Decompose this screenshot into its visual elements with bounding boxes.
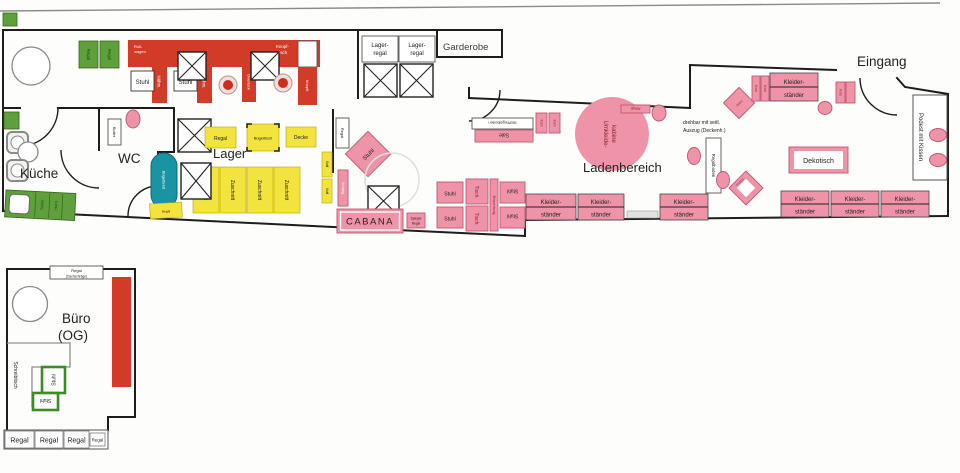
clothes-rack-row-left: Kleider- ständer Kleider- ständer Kleide…	[526, 194, 708, 220]
crossed-table	[251, 52, 279, 80]
storage-shelf-box: Lager- regal	[362, 36, 398, 62]
clothes-rack-row-right: Kleider- ständer Kleider- ständer Kleide…	[781, 191, 929, 217]
stool-oval	[652, 105, 666, 121]
table-label: Tisch	[473, 213, 479, 225]
kitchen-counter: Spüle Herd	[5, 190, 76, 221]
stool-oval	[717, 172, 730, 189]
desk-label: Schreibtisch	[12, 361, 18, 388]
ironing-board-label: Bügelbrett	[162, 171, 167, 190]
clothes-rack: Kleider- ständer	[881, 191, 929, 217]
crossed-table	[181, 163, 211, 199]
cushion	[930, 129, 947, 142]
ironing-table-label: Bügeltisch	[254, 136, 272, 141]
crossed-table	[178, 52, 206, 80]
sewing-machine-label: Nähm.	[157, 76, 162, 89]
attic-shelf-note: (Dachschräge)	[66, 275, 87, 279]
rack-label: ständer	[795, 210, 815, 216]
cutting-label: Zuschnitt	[256, 180, 262, 201]
button-table-label: Knopf-	[276, 44, 289, 49]
curtain-label: Vorhang	[341, 182, 345, 194]
chair-label: Stuhl	[444, 192, 455, 198]
wardrobe-label: Garderobe	[443, 42, 488, 53]
office-floor: Regal (Dachschräge) Büro (OG) Schreibtis…	[4, 266, 135, 449]
cart-label: wagen	[134, 49, 146, 54]
clothes-rack: Kleider- ständer	[831, 191, 879, 217]
door-arc-entrance	[860, 78, 897, 115]
cushion-podium: Podest mit Kissen	[913, 95, 947, 180]
basket-label: Korb	[839, 89, 843, 96]
chair-box: Stuhl	[437, 207, 463, 228]
podium-label: Podest mit Kissen	[917, 113, 923, 161]
blanket-label: Decke	[294, 135, 308, 141]
deco-diamond: Deko	[723, 87, 754, 118]
ironing-board: Bügelbrett	[151, 153, 177, 208]
small-shelf: Regal	[150, 202, 183, 219]
fitting-room-label: Umkleide-	[602, 120, 608, 147]
storage-shelf-box: Lager- regal	[399, 36, 435, 62]
shelf-label: Regal	[10, 438, 29, 445]
floorplan-page: Spüle Herd Küche WC Boiler Regal Regal R…	[0, 0, 960, 473]
deco-table: Dekotisch	[789, 147, 848, 173]
fabric-shelf-label: Stoffregalboden	[488, 121, 516, 126]
crossed-table	[364, 64, 397, 97]
cutting-table: Zuschnitt	[220, 167, 246, 213]
cutting-label: Zuschnitt	[283, 180, 289, 201]
cabana-area: Regal Stuhl Vorhang CABANA Spiegel Regal	[336, 118, 425, 233]
clothes-rack: Kleider- ständer	[578, 194, 624, 220]
chair-box: Stuhl	[500, 207, 525, 228]
door-arc-hall	[61, 150, 99, 188]
rack-label: Kleider-	[591, 200, 612, 206]
shelf-label: Regal	[107, 49, 112, 60]
table-box: Tisch	[466, 206, 488, 231]
basket-box	[846, 82, 855, 103]
chair-label: Stuhl	[179, 80, 193, 86]
cutting-table: Zuschnitt	[274, 167, 300, 213]
shelf-label: Regal	[92, 438, 103, 443]
kitchen-round-table	[12, 47, 50, 85]
chair-label: Stuhl	[52, 374, 58, 385]
meeting-label: Besprechung	[492, 196, 496, 215]
cabinet-label: Regal	[340, 128, 345, 139]
kitchen-label: Küche	[20, 166, 58, 181]
attic-shelf-label: Regal	[71, 268, 82, 273]
ledge-label: Ablage	[630, 107, 640, 111]
cabana-box: CABANA	[337, 209, 403, 233]
note-rotatable: Auszug (Deckenh.)	[683, 128, 726, 134]
chair-label: Stuhl	[507, 213, 518, 219]
note-rotatable: drehbar mit seitl.	[683, 120, 720, 126]
rack-label: ständer	[591, 213, 611, 219]
shelf-label: regal	[373, 51, 386, 57]
shelf-label: Regal	[214, 136, 227, 142]
rack-label: Kleider-	[845, 197, 866, 203]
tall-shelf-red	[112, 277, 131, 387]
counter-label: Spüle	[39, 199, 45, 210]
chair-box: Stuhl	[500, 182, 525, 203]
stool-oval	[688, 148, 701, 165]
shop-area: Stoffregalboden Sale Korb Korb Umkleide-…	[472, 54, 947, 220]
counter-label: Herd	[53, 201, 58, 210]
cutting-label: Zuschnitt	[229, 180, 235, 201]
rack-label: ständer	[784, 93, 804, 99]
chair-label: Stuhl	[40, 397, 51, 403]
crossed-table	[400, 64, 433, 97]
stool-oval	[818, 102, 832, 115]
rack-label: ständer	[674, 213, 694, 219]
meeting-group: Stuhl Stuhl Tisch Tisch Besprechung Stuh…	[437, 179, 525, 231]
sink	[9, 194, 30, 214]
shelf-label: regal	[410, 51, 423, 57]
door-arc-shop	[469, 90, 500, 121]
kitchen-area: Spüle Herd Küche WC Boiler	[3, 13, 141, 221]
mirror-label: Spiegel	[411, 217, 422, 221]
chair-box-green: Stuhl	[42, 367, 65, 393]
shelf-row: Regal Regal Regal Regal	[4, 430, 108, 449]
sale-rack: Sale	[475, 130, 533, 142]
chair-label: Stuhl	[136, 80, 150, 86]
clothes-rack: Kleider- ständer	[770, 73, 818, 101]
fabric-label: Stoff	[325, 161, 329, 168]
shelf-green-corner	[3, 13, 17, 26]
storage-label: Lager	[213, 146, 247, 161]
chair-box-green: Stuhl	[33, 393, 58, 410]
chair-box: Stuhl	[437, 182, 463, 203]
shelf-label: Regal	[86, 49, 91, 60]
office-label: Büro	[62, 311, 91, 326]
basket-label: Korb	[763, 85, 767, 92]
basket-label: Korb	[540, 120, 544, 127]
wc-label: WC	[118, 151, 141, 166]
shelf-label: Regal	[40, 438, 59, 445]
rack-label: Kleider-	[674, 200, 695, 206]
cabana-label: CABANA	[346, 217, 394, 228]
fitting-room-label: kabine	[610, 125, 616, 143]
fabric-shelf-strip: Stoffregalboden	[472, 118, 533, 129]
boundary-line	[0, 3, 940, 11]
shelf-label: Lager-	[371, 43, 388, 49]
chair-box: Stuhl	[131, 71, 154, 91]
clothes-rack: Kleider- ständer	[781, 191, 829, 217]
table-box: Tisch	[466, 179, 488, 204]
kitchen-cabinet	[4, 112, 19, 129]
rack-label: Kleider-	[784, 80, 805, 86]
rack-label: ständer	[895, 210, 915, 216]
table-label: Tisch	[473, 186, 479, 198]
entrance-label: Eingang	[857, 54, 907, 69]
sewing-workshop: Roll- wagen Knopf- tisch Nähm. Nähm. Ove…	[128, 40, 320, 105]
cushion	[930, 154, 947, 167]
rack-label: ständer	[845, 210, 865, 216]
rack-label: Kleider-	[541, 200, 562, 206]
mirror-box: Spiegel Regal	[407, 213, 425, 228]
shelf-label: Lager-	[408, 43, 425, 49]
stool-diamond: Hocker	[729, 171, 763, 205]
shelf-board-label: Regalboden	[711, 154, 716, 178]
green-shelves-top: Regal Regal	[79, 41, 119, 68]
rack-label: Kleider-	[895, 197, 916, 203]
workshop-niche	[298, 41, 317, 67]
chair-label: Stuhl	[444, 217, 455, 223]
cutting-table: Zuschnitt	[247, 167, 273, 213]
shop-label: Ladenbereich	[583, 160, 662, 175]
stool-oval	[126, 110, 140, 128]
rack-label: ständer	[541, 213, 561, 219]
clothes-rack: Kleider- ständer	[526, 194, 576, 220]
rack-label: Kleider-	[795, 197, 816, 203]
office-label: (OG)	[58, 328, 88, 343]
boiler-label: Boiler	[112, 127, 117, 138]
shelf-label: Regal	[162, 209, 171, 213]
chair-label: Stuhl	[507, 188, 518, 194]
office-round-table	[13, 287, 48, 322]
attic-shelf-strip: Regal (Dachschräge)	[50, 266, 103, 279]
shelf-label: Regal	[412, 222, 421, 226]
basket-label: Korb	[553, 120, 557, 127]
shelf-label: Regal	[67, 438, 86, 445]
stool	[274, 74, 292, 92]
buttonhole-label: Knopfl.	[305, 80, 310, 92]
deco-table-label: Dekotisch	[803, 158, 834, 165]
clothes-rack: Kleider- ständer	[660, 194, 708, 220]
sale-label: Sale	[499, 132, 509, 138]
fabric-label: Stoff	[325, 188, 329, 195]
basket-label: Korb	[754, 85, 758, 92]
stool	[219, 76, 237, 94]
vent-strip	[627, 211, 658, 218]
floorplan-drawing: Spüle Herd Küche WC Boiler Regal Regal R…	[0, 0, 960, 473]
storage-room: Regal Bügeltisch Decke Lager Zuschnitt Z…	[150, 119, 332, 219]
